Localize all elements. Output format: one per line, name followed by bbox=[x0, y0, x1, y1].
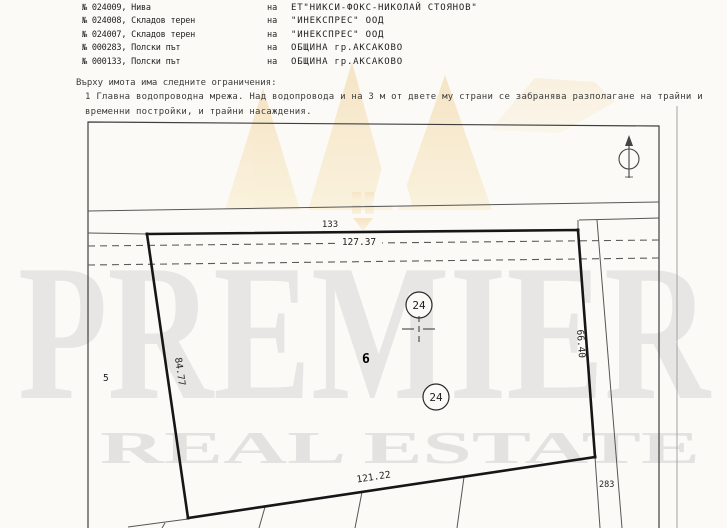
dimension-right-edge: 66.40 bbox=[574, 329, 587, 359]
dimension-bottom-edge: 121.22 bbox=[356, 470, 392, 486]
property-owner: ОБЩИНА гр.АКСАКОВО bbox=[291, 42, 722, 55]
restrictions-line-1: 1 Главна водопроводна мрежа. Над водопро… bbox=[85, 90, 703, 105]
property-label: № 000133, Полски път bbox=[82, 56, 267, 69]
property-prep: на bbox=[267, 15, 291, 28]
property-label: № 024009, Нива bbox=[82, 2, 267, 15]
property-owner: "ИНЕКСПРЕС" ООД bbox=[291, 15, 722, 28]
property-row: № 000133, Полски път на ОБЩИНА гр.АКСАКО… bbox=[82, 56, 722, 69]
survey-cross-icon bbox=[402, 316, 436, 343]
building-mark-label: 6 bbox=[362, 352, 370, 367]
restrictions-heading: Върху имота има следните ограничения: bbox=[76, 76, 703, 90]
parcel-number-text: 24 bbox=[429, 391, 443, 404]
road-number-label-283: 283 bbox=[599, 480, 614, 490]
property-owner: "ИНЕКСПРЕС" ООД bbox=[291, 29, 722, 42]
dimension-top-edge: 127.37 bbox=[342, 237, 376, 248]
property-owner: ЕТ"НИКСИ-ФОКС-НИКОЛАЙ СТОЯНОВ" bbox=[291, 2, 722, 15]
property-label: № 000283, Полски път bbox=[82, 42, 267, 55]
road-number-label-133: 133 bbox=[322, 220, 338, 230]
north-arrow-icon bbox=[619, 135, 639, 178]
property-list: № 024009, Нива на ЕТ"НИКСИ-ФОКС-НИКОЛАЙ … bbox=[82, 2, 722, 69]
property-prep: на bbox=[267, 56, 291, 69]
map-frame bbox=[88, 122, 659, 528]
property-owner: ОБЩИНА гр.АКСАКОВО bbox=[291, 56, 722, 69]
parcel-number-circle-1: 24 bbox=[402, 292, 436, 343]
property-prep: на bbox=[267, 2, 291, 15]
parcel-number-circle-2: 24 bbox=[423, 384, 449, 410]
property-prep: на bbox=[267, 42, 291, 55]
property-label: № 024008, Складов терен bbox=[82, 15, 267, 28]
property-row: № 024009, Нива на ЕТ"НИКСИ-ФОКС-НИКОЛАЙ … bbox=[82, 2, 722, 15]
restrictions-block: Върху имота има следните ограничения: 1 … bbox=[76, 76, 703, 119]
property-row: № 024007, Складов терен на "ИНЕКСПРЕС" О… bbox=[82, 29, 722, 42]
property-prep: на bbox=[267, 29, 291, 42]
parcel-number-text: 24 bbox=[412, 299, 426, 312]
property-row: № 024008, Складов терен на "ИНЕКСПРЕС" О… bbox=[82, 15, 722, 28]
neighbor-parcel-label-5: 5 bbox=[103, 373, 109, 384]
property-label: № 024007, Складов терен bbox=[82, 29, 267, 42]
restrictions-line-2: временни постройки, и трайни насаждения. bbox=[85, 105, 703, 120]
property-row: № 000283, Полски път на ОБЩИНА гр.АКСАКО… bbox=[82, 42, 722, 55]
parcel-corner-extension-line bbox=[595, 457, 600, 528]
dimension-left-edge: 84.77 bbox=[172, 357, 187, 387]
